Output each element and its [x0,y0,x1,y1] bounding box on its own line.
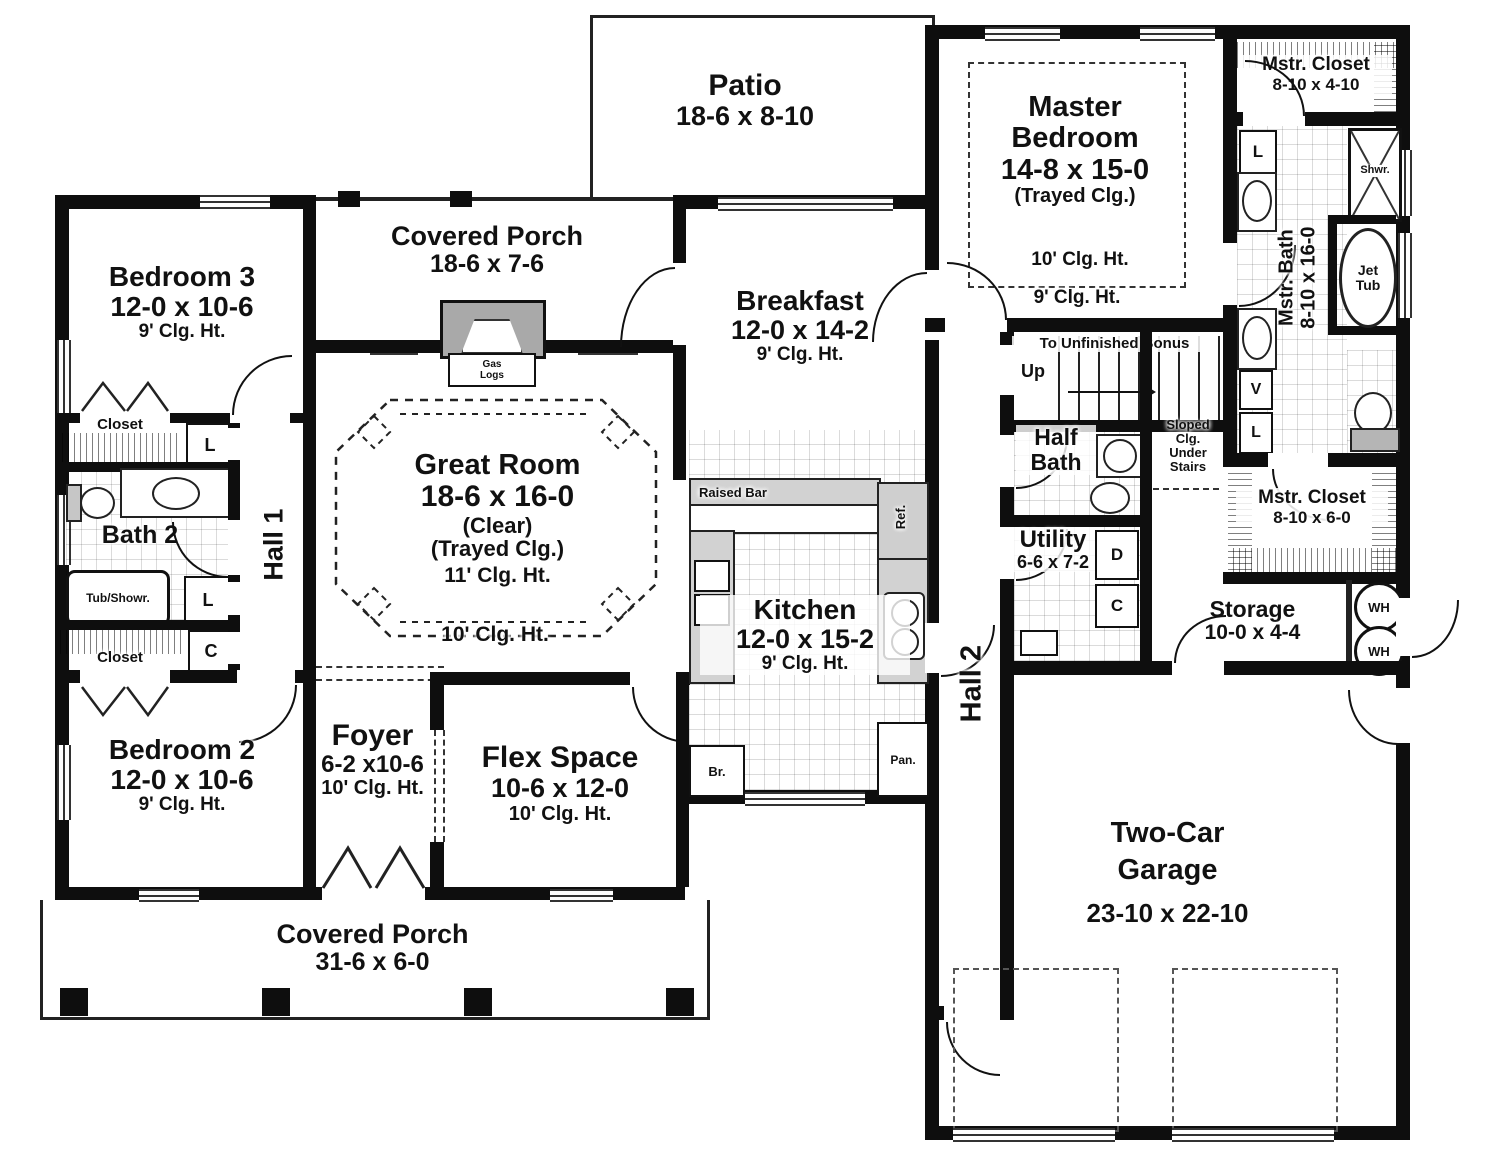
stairs-note: To Unfinished Bonus [1012,336,1217,352]
mstr-closet-lower-label: Mstr. Closet 8-10 x 6-0 [1236,488,1388,527]
pantry-label: Pan. [890,753,915,767]
porch-post-1 [338,191,360,207]
wall-bath2-bottom [55,620,235,630]
mstr-closet-lower-hatch-bottom [1233,548,1396,574]
covered-porch-top-label: Covered Porch 18-6 x 7-6 [372,222,602,278]
ref-label: Ref. [894,482,908,552]
sloped-note: Sloped Clg. Under Stairs [1148,418,1228,474]
wh1-label: WH [1368,600,1390,615]
bedroom2-ceiling: 9' Clg. Ht. [72,795,292,816]
foyer-size: 6-2 x10-6 [300,752,445,778]
utility-label: Utility 6-6 x 7-2 [1008,527,1098,572]
opening-bedroom2-door [237,670,295,683]
mstrbath-label: Mstr. Bath 8-10 x 16-0 [1276,208,1319,348]
halfbath-line1: Half [1016,425,1096,450]
sloped-line3: Under [1148,446,1228,460]
master-note: (Trayed Clg.) [975,186,1175,208]
coat2-label: C [1111,596,1123,616]
bedroom3-label: Bedroom 3 12-0 x 10-6 9' Clg. Ht. [72,262,292,343]
mstrbath-name: Mstr. Bath [1276,208,1298,348]
wall-tubroom-top [1328,215,1396,224]
garage-name-line1: Two-Car [1060,818,1275,849]
sliding-door-breakfast [718,197,893,211]
opening-kitchen-hall2 [925,623,939,673]
greatroom-note2: (Trayed Clg.) [380,537,615,561]
foyer-name: Foyer [300,720,445,752]
garage-name-line2: Garage [1060,855,1275,886]
covered-porch-bottom-label: Covered Porch 31-6 x 6-0 [255,920,490,976]
gas-logs-box: Gas Logs [448,353,536,387]
garage-door-2 [1172,1128,1334,1142]
opening-bath2 [228,520,240,575]
mstrbath-sink-1 [1242,180,1272,222]
master-ceiling-inner: 10' Clg. Ht. [1015,250,1145,271]
master-name-line2: Bedroom [975,123,1175,154]
porch-post-4 [262,988,290,1016]
opening-garage-service-door [1396,688,1410,743]
bedroom3-name: Bedroom 3 [72,262,292,292]
bath2-sink [152,477,200,510]
garage-label: Two-Car Garage 23-10 x 22-10 [1060,818,1275,927]
bedroom2-size: 12-0 x 10-6 [72,765,292,795]
raised-bar-label: Raised Bar [691,486,767,500]
halfbath-sink [1103,439,1137,473]
shower-label: Shwr. [1353,165,1397,177]
vanity-box: V [1239,370,1273,410]
garage-bay-2 [1172,968,1338,1132]
window-master-top-1 [985,27,1060,41]
greatroom-ceiling-inner: 11' Clg. Ht. [380,565,615,588]
flex-label: Flex Space 10-6 x 12-0 10' Clg. Ht. [450,742,670,825]
master-name-line1: Master [975,92,1175,123]
opening-halfbath-door [1000,435,1014,487]
flex-colonnade-dash-1 [434,730,436,842]
covered-porch-bottom-name: Covered Porch [255,920,490,949]
greatroom-label: Great Room 18-6 x 16-0 (Clear) (Trayed C… [380,450,615,588]
opening-storage-door [1172,661,1224,675]
bifold-doors-bedroom2-closet [80,685,170,718]
broom-label: Br. [708,764,725,779]
gas-logs-line2: Logs [480,370,504,381]
up-label: Up [1012,362,1054,381]
closet2-label: Closet [70,650,170,666]
greatroom-size: 18-6 x 16-0 [380,481,615,513]
bedroom2-label: Bedroom 2 12-0 x 10-6 9' Clg. Ht. [72,735,292,816]
patio-wall-top [590,15,935,18]
patio-name: Patio [640,70,850,102]
bedroom3-ceiling: 9' Clg. Ht. [72,322,292,343]
mstrbath-toilet-tank [1350,428,1400,452]
master-size: 14-8 x 15-0 [975,155,1175,186]
sloped-line2: Clg. [1148,432,1228,446]
mstr-closet-lower-size: 8-10 x 6-0 [1236,509,1388,527]
french-doors-foyer [320,845,427,890]
foyer-ceiling: 10' Clg. Ht. [300,778,445,800]
kitchen-size: 12-0 x 15-2 [700,625,910,654]
opening-mstrbath-door [1223,243,1237,305]
shower: Shwr. [1348,128,1402,222]
covered-porch-top-size: 18-6 x 7-6 [372,251,602,278]
garage-bay-1 [953,968,1119,1132]
jet-tub-line2: Tub [1356,278,1381,293]
bedroom2-name: Bedroom 2 [72,735,292,765]
mstrbath-sink-2 [1242,316,1272,360]
wall-sloped-left [1140,332,1152,661]
utility-size: 6-6 x 7-2 [1008,553,1098,572]
door-arc-porch-breakfast [620,267,675,347]
porch-post-6 [666,988,694,1016]
halfbath-toilet [1090,482,1130,514]
window-bedroom3-top [200,195,270,209]
linen4-label: L [1251,424,1261,442]
window-jettub-right [1398,233,1412,318]
wall-master-left [925,25,939,205]
kitchen-label: Kitchen 12-0 x 15-2 9' Clg. Ht. [700,595,910,675]
gas-logs-line1: Gas [483,359,502,370]
covered-porch-top-name: Covered Porch [372,222,602,251]
foyer-ceiling-dash-2 [316,679,444,681]
porch-post-5 [464,988,492,1016]
linen4-box: L [1239,412,1273,454]
storage-name: Storage [1160,597,1345,622]
jet-tub-line1: Jet [1358,263,1378,278]
window-flex-bottom [550,889,613,902]
flex-colonnade-dash-2 [443,730,445,842]
broom-closet: Br. [689,745,745,797]
door-arc-garage-service [1348,690,1398,745]
firebox [461,319,523,354]
garage-size: 23-10 x 22-10 [1060,899,1275,927]
porch-bottom-left-edge [40,900,43,1020]
linen3-label: L [1253,142,1263,162]
flex-name: Flex Space [450,742,670,774]
wall-tubroom-bottom [1328,326,1396,335]
patio-size: 18-6 x 8-10 [640,102,850,131]
fireplace [440,300,546,359]
greatroom-ceiling-outer: 10' Clg. Ht. [430,624,560,647]
sloped-line4: Stairs [1148,460,1228,474]
flex-ceiling: 10' Clg. Ht. [450,804,670,826]
opening-master-door [945,318,1007,332]
utility-appliance [1020,630,1058,656]
dryer-label: D [1111,545,1123,565]
opening-linen2 [228,582,240,615]
tub-shower: Tub/Showr. [66,570,170,626]
coat1-label: C [205,641,218,662]
dryer-box: D [1095,530,1139,580]
halfbath-label: Half Bath [1016,425,1096,475]
closet1-label: Closet [70,417,170,433]
door-arc-bedroom3 [232,355,292,415]
sloped-line1: Sloped [1148,418,1228,432]
breakfast-ceiling: 9' Clg. Ht. [690,345,910,366]
garage-door-1 [953,1128,1115,1142]
coat2-box: C [1095,584,1139,628]
mstr-closet-lower-name: Mstr. Closet [1236,488,1388,509]
greatroom-note1: (Clear) [380,514,615,538]
linen2-box: L [184,576,232,624]
halfbath-line2: Bath [1016,450,1096,475]
linen3-box: L [1239,130,1277,174]
porch-bottom-right-edge [707,900,710,1020]
bath2-toilet [80,487,115,519]
mstrbath-size: 8-10 x 16-0 [1298,208,1320,348]
wall-bedroom3-right [303,195,316,677]
kitchen-name: Kitchen [700,595,910,625]
stair-arrow-line [1068,391,1148,393]
wall-mstr-closet-top [1230,25,1410,39]
covered-porch-bottom-size: 31-6 x 6-0 [255,949,490,976]
wall-bedroom3-top [55,195,315,209]
jet-tub: Jet Tub [1339,228,1397,328]
master-ceiling-outer: 9' Clg. Ht. [1012,288,1142,309]
utility-name: Utility [1008,527,1098,553]
opening-wh-exterior-door [1396,598,1410,656]
window-kitchen-back [745,792,865,806]
wall-wh-divider [1346,580,1352,663]
wall-flex-right [676,672,689,887]
opening-linen1 [228,428,240,460]
hall1-label: Hall 1 [259,483,288,607]
bifold-doors-bedroom3-closet [80,380,170,413]
door-arc-wh-exterior [1412,600,1459,658]
master-bedroom-label: Master Bedroom 14-8 x 15-0 (Trayed Clg.) [975,92,1175,208]
floor-plan: Patio 18-6 x 8-10 Covered Porch 18-6 x 7… [0,0,1500,1160]
wh2-label: WH [1368,644,1390,659]
porch-post-3 [60,988,88,1016]
opening-bedroom2-closet [80,670,170,683]
door-arc-breakfast-hall2 [872,272,927,342]
linen1-label: L [205,435,216,456]
closet1-hatch [62,433,182,462]
wall-flex-left-stub-bottom [430,842,444,887]
hall2-label: Hall 2 [956,602,987,766]
bedroom3-size: 12-0 x 10-6 [72,292,292,322]
window-bedroom2-left [57,745,71,820]
porch-bottom-bottom-edge [40,1017,710,1020]
opening-coat1 [228,632,240,664]
foyer-label: Foyer 6-2 x10-6 10' Clg. Ht. [300,720,445,800]
porch-top-edge [310,197,680,201]
linen2-label: L [203,590,214,611]
tub-shower-label: Tub/Showr. [86,592,150,605]
patio-wall-left [590,15,593,197]
window-bedroom3-left [57,340,71,415]
pantry: Pan. [877,722,929,797]
sloped-dash-line [1153,488,1219,490]
foyer-ceiling-dash-1 [316,666,444,668]
patio-label: Patio 18-6 x 8-10 [640,70,850,132]
wall-tubroom-left [1328,215,1337,333]
porch-post-2 [450,191,472,207]
greatroom-name: Great Room [380,450,615,481]
flex-size: 10-6 x 12-0 [450,774,670,803]
kitchen-ceiling: 9' Clg. Ht. [700,654,910,675]
window-bedroom2-bottom [139,889,199,902]
window-master-top-2 [1140,27,1215,41]
vanity-label: V [1251,381,1262,399]
range-burner-1 [694,560,730,592]
opening-mstr-closet-lower-door [1268,453,1328,467]
